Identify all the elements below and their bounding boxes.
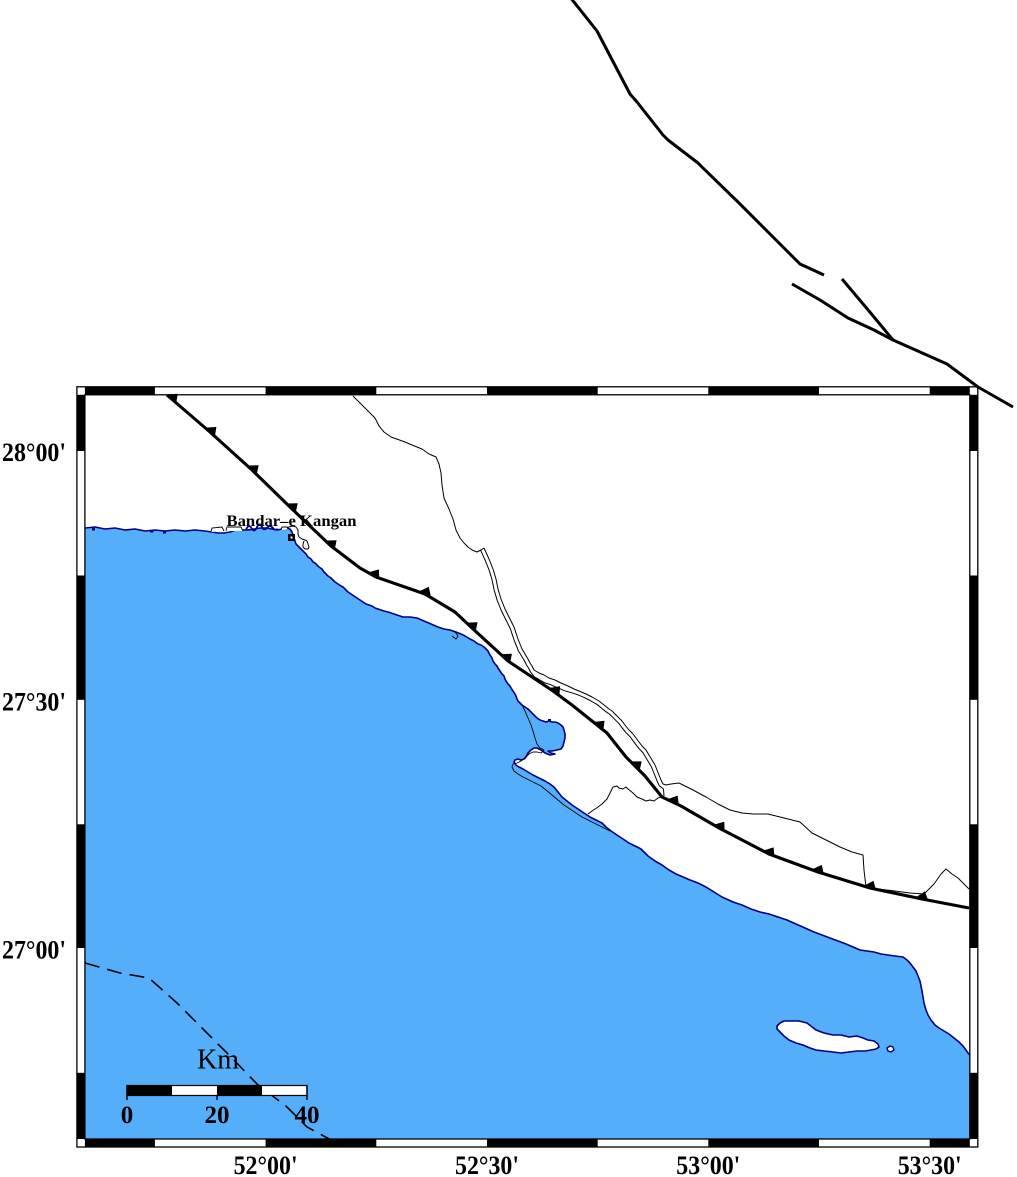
svg-text:20: 20 xyxy=(205,1102,230,1129)
svg-text:0: 0 xyxy=(121,1102,134,1129)
svg-text:Bandar–e Kangan: Bandar–e Kangan xyxy=(227,513,357,530)
svg-text:27°00': 27°00' xyxy=(2,936,66,965)
svg-text:53°00': 53°00' xyxy=(676,1151,740,1177)
svg-text:52°30': 52°30' xyxy=(455,1151,519,1177)
svg-text:27°30': 27°30' xyxy=(2,688,66,717)
svg-text:53°30': 53°30' xyxy=(898,1151,962,1177)
svg-text:52°00': 52°00' xyxy=(234,1151,298,1177)
svg-text:40: 40 xyxy=(295,1102,320,1129)
svg-text:28°00': 28°00' xyxy=(2,438,66,467)
svg-text:Km: Km xyxy=(197,1045,239,1076)
